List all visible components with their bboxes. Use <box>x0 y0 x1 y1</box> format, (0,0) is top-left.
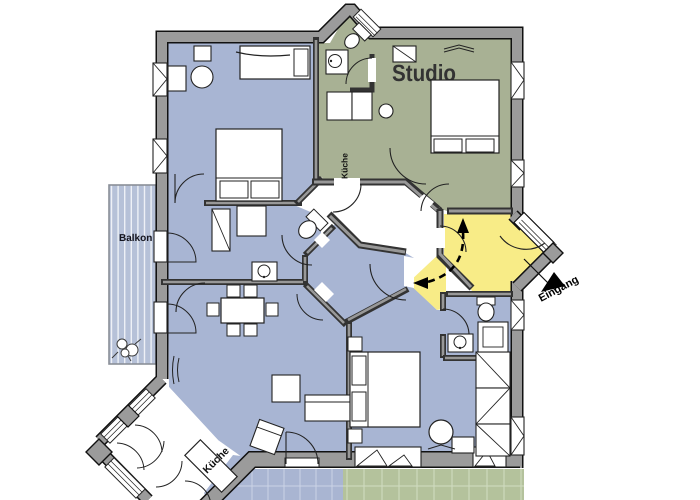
svg-text:Küche: Küche <box>340 153 350 179</box>
svg-text:Balkon: Balkon <box>119 233 152 244</box>
